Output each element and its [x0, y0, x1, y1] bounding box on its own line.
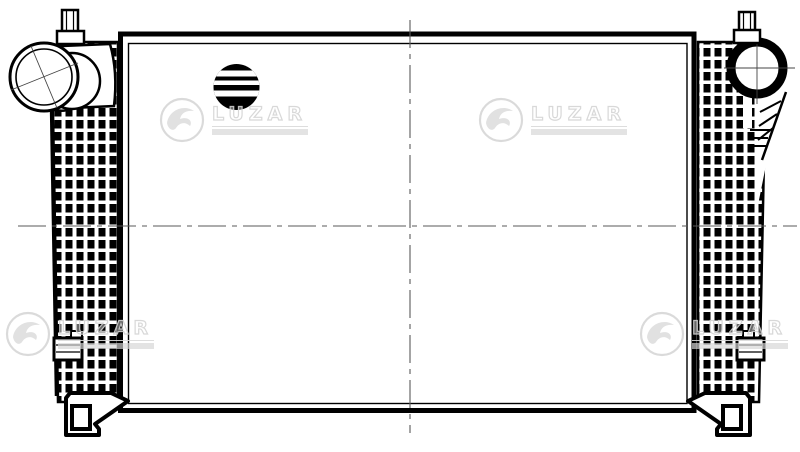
intercooler-drawing [0, 0, 800, 452]
port-slot [743, 95, 752, 128]
core [121, 34, 695, 411]
right-bottom-foot [688, 393, 750, 435]
core-face [123, 37, 687, 408]
technical-drawing-canvas: LUZAR LUZAR LUZAR LUZAR [0, 0, 800, 452]
left-inlet-pipe [10, 43, 115, 111]
right-top-pin [734, 12, 760, 43]
left-top-pin [57, 10, 84, 44]
left-bottom-foot [66, 393, 128, 435]
